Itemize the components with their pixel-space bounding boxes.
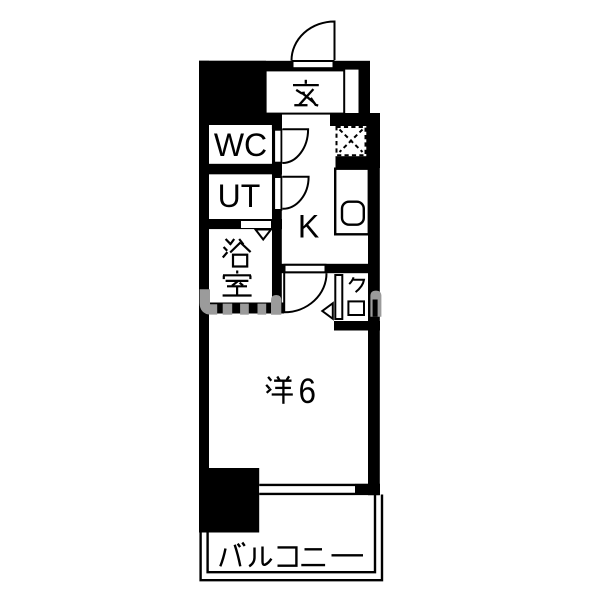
svg-text:6: 6 bbox=[299, 372, 317, 411]
svg-text:UT: UT bbox=[218, 178, 261, 214]
svg-text:WC: WC bbox=[214, 127, 267, 163]
svg-text:K: K bbox=[298, 209, 319, 245]
